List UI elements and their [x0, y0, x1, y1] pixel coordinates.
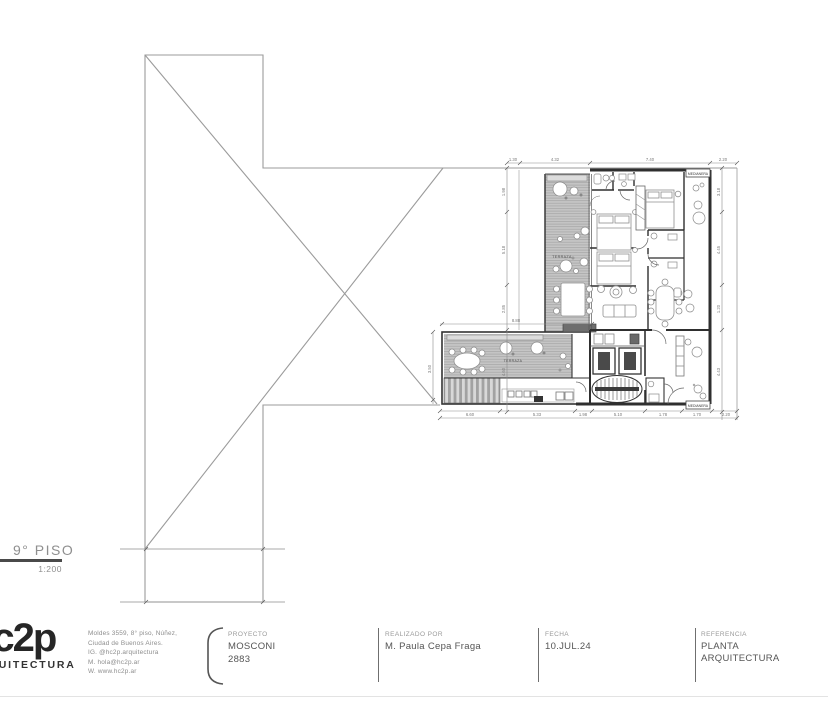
- dim-bottom-5: 1.70: [693, 412, 702, 417]
- bed: [597, 214, 631, 250]
- dim-left-3: 4.60: [501, 367, 506, 376]
- wardrobe: [636, 186, 645, 230]
- dim-top-2: 7.40: [646, 157, 655, 162]
- scale-label: 1:200: [30, 564, 62, 574]
- lobby-closet: [676, 336, 684, 376]
- address-line: W. www.hc2p.ar: [88, 667, 177, 677]
- address-line: IG. @hc2p.arquitectura: [88, 648, 177, 658]
- dim-left-0: 1.98: [501, 187, 506, 196]
- dim-right-2: 1.20: [716, 304, 721, 313]
- hc2p-logo: hc2p ARQUITECTURA: [0, 618, 76, 671]
- pergola-deck: [444, 378, 500, 403]
- party-wall-tag-top: MEDIANERA: [686, 169, 710, 177]
- project-label: PROYECTO: [228, 631, 268, 638]
- elevator-cab: [624, 352, 636, 370]
- dim-right-3: 4.43: [716, 367, 721, 376]
- project-number: 2883: [228, 654, 250, 665]
- bed: [646, 190, 674, 228]
- party-wall-label: MEDIANERA: [688, 404, 709, 408]
- floor-plan-drawing: 1.30 4.32 7.40 2.20 6.60 5.33 1.98 5.10 …: [0, 0, 828, 703]
- elevator-cab: [598, 352, 610, 370]
- dim-bottom-6: 2.20: [722, 412, 731, 417]
- address-line: M. hola@hc2p.ar: [88, 658, 177, 668]
- reference-value-line2: ARQUITECTURA: [701, 653, 780, 664]
- dim-bottom-0: 6.60: [466, 412, 475, 417]
- terrace-wing-label: TERRAZA: [504, 359, 523, 363]
- bed: [597, 252, 631, 284]
- planter-box: [447, 335, 543, 340]
- address-line: Moldes 3559, 8° piso, Núñez,: [88, 629, 177, 639]
- dim-bottom-3: 5.10: [614, 412, 623, 417]
- dim-wing-left: 3.50: [427, 364, 432, 373]
- date-value: 10.JUL.24: [545, 641, 591, 652]
- dim-top-0: 1.30: [509, 157, 518, 162]
- studio-address: Moldes 3559, 8° piso, Núñez, Ciudad de B…: [88, 629, 177, 677]
- terrace-label: TERRAZA: [552, 255, 572, 259]
- floor-label-rule: [0, 559, 62, 562]
- dim-bottom-4: 1.78: [659, 412, 668, 417]
- sofa: [603, 305, 636, 317]
- party-wall-label: MEDIANERA: [688, 172, 709, 176]
- terrace-table: [554, 283, 593, 316]
- dim-left-1: 5.18: [501, 245, 506, 254]
- dim-left-2: 2.85: [501, 304, 506, 313]
- titleblock-divider: [695, 628, 696, 682]
- dim-wing-top: 8.88: [512, 318, 521, 323]
- planter-box: [547, 175, 587, 181]
- dim-right-0: 3.18: [716, 187, 721, 196]
- author-name: M. Paula Cepa Fraga: [385, 641, 481, 652]
- dim-top-1: 4.32: [551, 157, 560, 162]
- titleblock-divider: [378, 628, 379, 682]
- sheet-bottom-rule: [0, 696, 828, 697]
- kitchen-counter: [502, 389, 574, 402]
- project-name: MOSCONI: [228, 641, 276, 652]
- bracket-icon: [206, 626, 226, 686]
- outline-diagonal-a: [145, 55, 437, 404]
- dim-right-1: 4.45: [716, 245, 721, 254]
- date-label: FECHA: [545, 631, 569, 638]
- reference-label: REFERENCIA: [701, 631, 747, 638]
- drawing-sheet: { "drawing": { "floor_label": "9° PISO",…: [0, 0, 828, 703]
- titleblock-divider: [538, 628, 539, 682]
- dim-bottom-2: 1.98: [579, 412, 588, 417]
- elevator-core: [590, 334, 645, 374]
- oval-stair: [592, 376, 642, 403]
- logo-subtitle: ARQUITECTURA: [0, 659, 76, 671]
- dining-table: [648, 279, 682, 327]
- party-wall-tag-bottom: MEDIANERA: [686, 401, 710, 409]
- logo-wordmark: hc2p: [0, 618, 76, 658]
- author-label: REALIZADO POR: [385, 631, 443, 638]
- floor-label: 9° PISO: [13, 542, 74, 558]
- reference-value-line1: PLANTA: [701, 641, 739, 652]
- dim-top-3: 2.20: [719, 157, 728, 162]
- address-line: Ciudad de Buenos Aires.: [88, 639, 177, 649]
- dim-bottom-1: 5.33: [533, 412, 542, 417]
